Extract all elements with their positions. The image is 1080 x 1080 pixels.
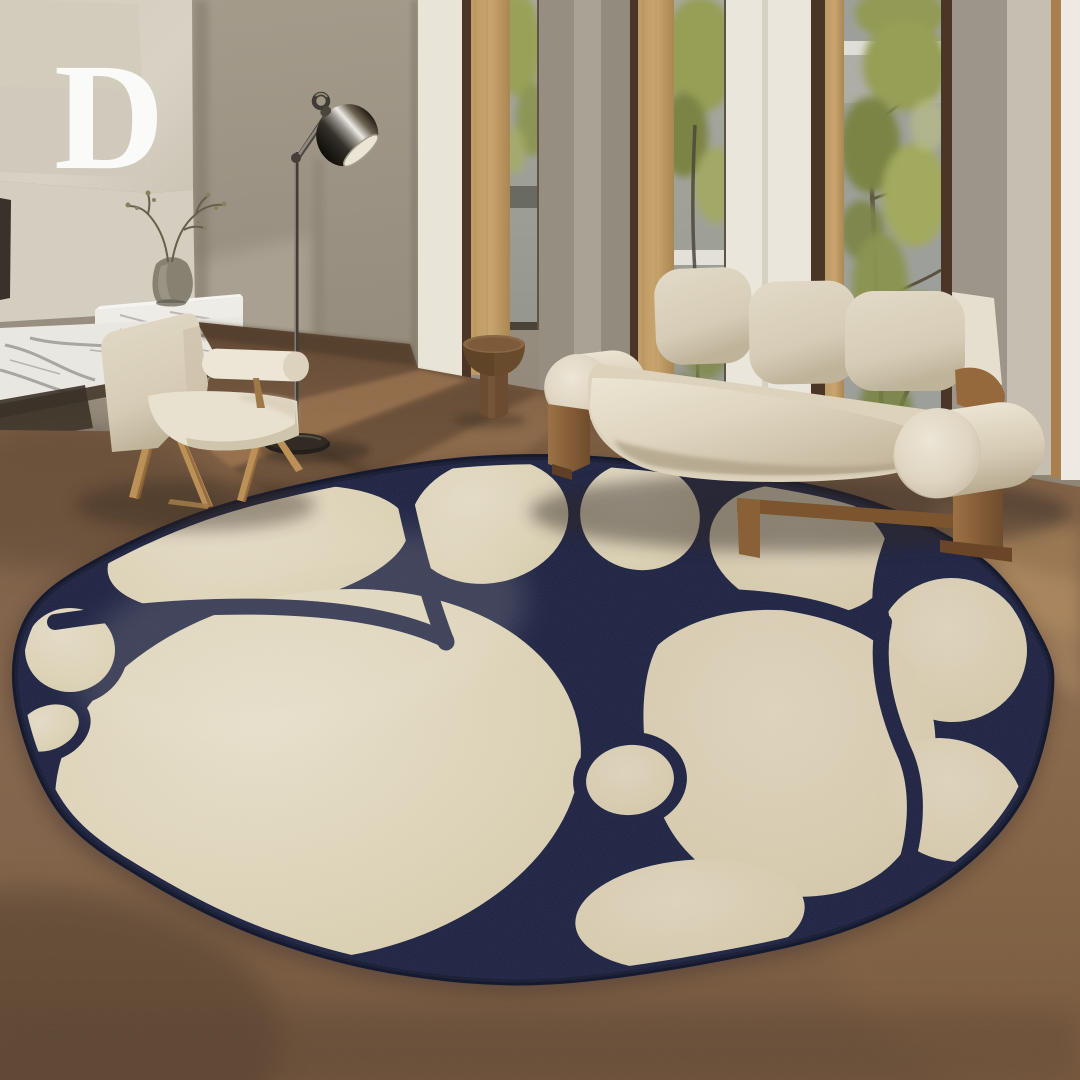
svg-text:D: D bbox=[54, 33, 165, 202]
